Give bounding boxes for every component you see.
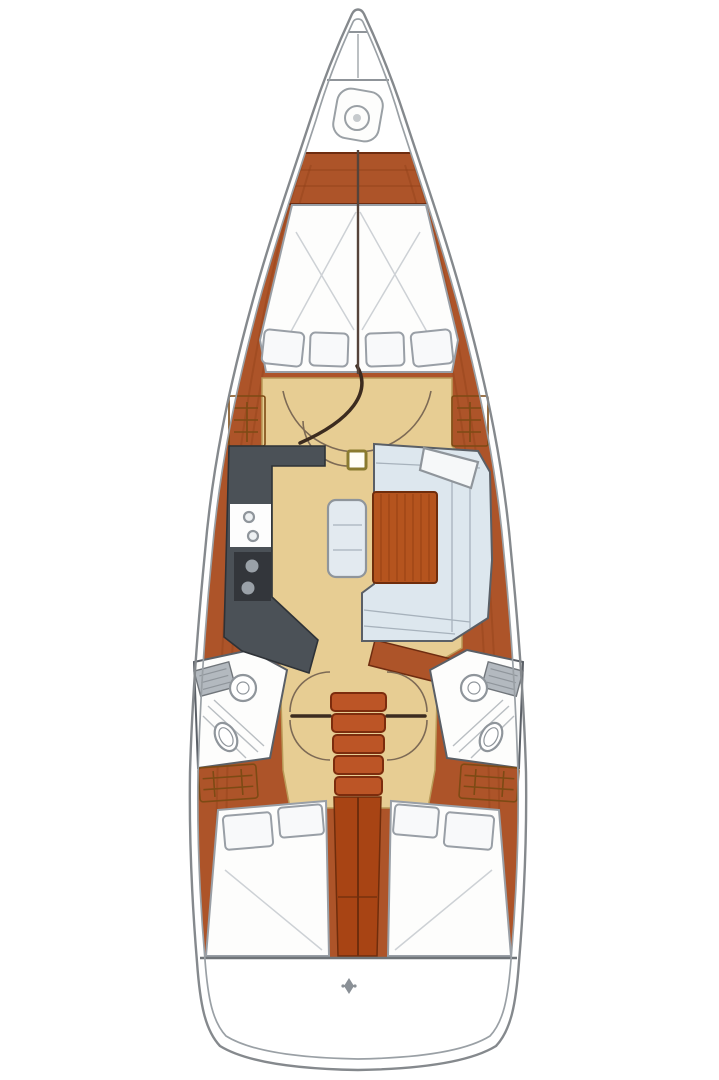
companionway-ladder	[331, 693, 386, 795]
aft-berth-port	[206, 801, 329, 956]
yacht-floorplan-page	[0, 0, 719, 1080]
salon-bench	[328, 500, 366, 577]
mast-step	[348, 451, 366, 469]
aft-berth-starboard	[388, 801, 511, 956]
anchor-windlass-icon	[331, 86, 385, 143]
floorplan-canvas	[0, 0, 719, 1080]
toilet-starboard	[461, 675, 487, 701]
salon-table	[373, 492, 437, 583]
galley-sink	[230, 504, 271, 547]
galley-stove	[234, 552, 271, 601]
engine-compartment	[334, 797, 381, 956]
toilet-port	[230, 675, 256, 701]
